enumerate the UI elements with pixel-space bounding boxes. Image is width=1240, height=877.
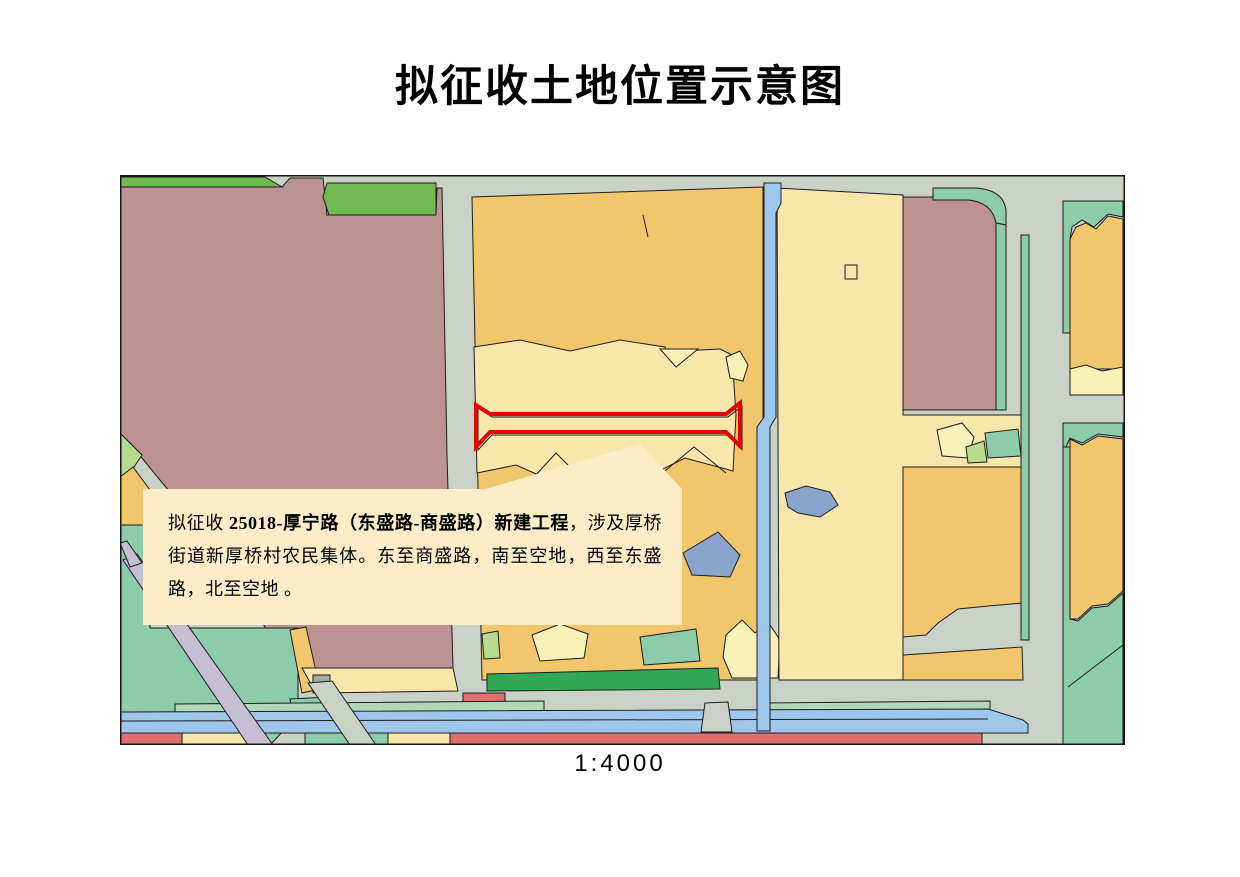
page: 拟征收土地位置示意图 [0,0,1240,877]
bridge [701,702,732,732]
map-parcel [996,223,1006,410]
callout-project-name: 25018-厚宁路（东盛路-商盛路）新建工程 [229,513,569,533]
map-canvas [120,175,1125,745]
map-parcel [1070,436,1123,619]
map-parcels-right [777,188,1123,745]
map-parcel [482,631,500,659]
page-title: 拟征收土地位置示意图 [0,52,1240,114]
map-parcel [903,197,1000,410]
map-parcel [323,183,436,215]
callout-text: 拟征收 25018-厚宁路（东盛路-商盛路）新建工程，涉及厚桥街道新厚桥村农民集… [168,507,662,606]
map-parcel [1070,216,1123,369]
map-parcel [1070,365,1123,395]
map-parcel [985,429,1021,458]
callout-text-prefix: 拟征收 [168,513,229,533]
map-parcel [120,177,282,187]
scale-label: 1:4000 [0,750,1240,778]
map-parcel [1021,235,1029,640]
map: 拟征收 25018-厚宁路（东盛路-商盛路）新建工程，涉及厚桥街道新厚桥村农民集… [120,175,1125,745]
